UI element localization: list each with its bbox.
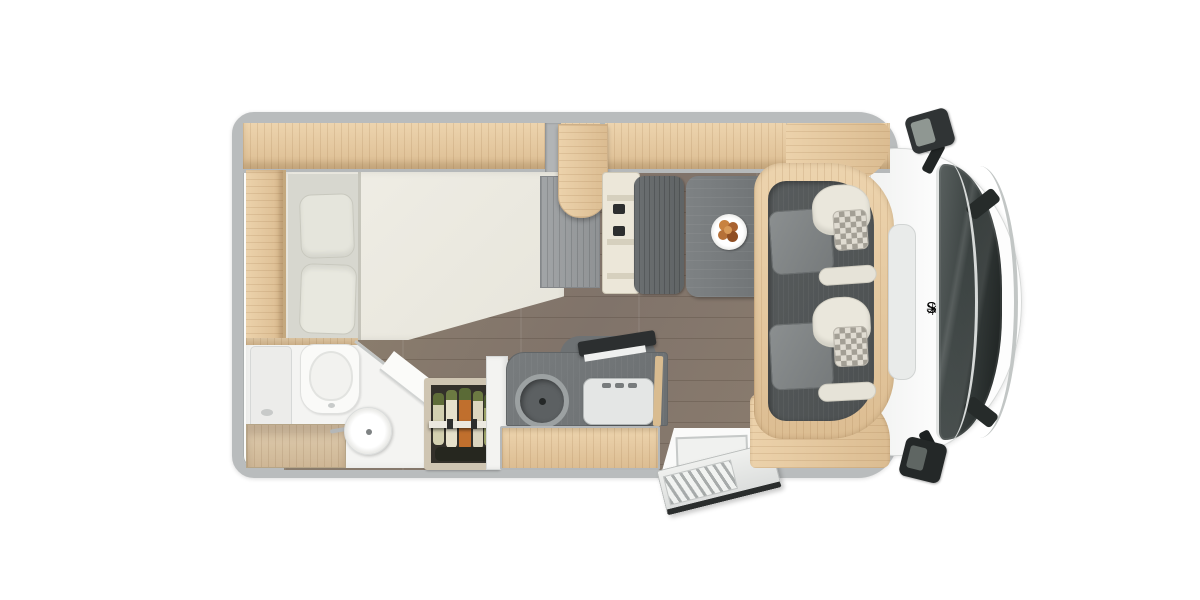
food-item	[724, 226, 732, 234]
wall-window	[316, 117, 446, 125]
produce-item-dark	[435, 447, 491, 461]
mirror-glass	[906, 445, 928, 471]
kitchen-sink	[515, 374, 569, 428]
toilet-flush-button	[328, 403, 335, 408]
hob-knob	[615, 383, 624, 388]
passenger-seat	[765, 295, 878, 407]
pillow	[299, 193, 355, 259]
burner	[628, 392, 648, 412]
seatbelt-buckle	[613, 226, 625, 236]
bench-rail	[607, 195, 637, 201]
produce-item	[433, 393, 444, 445]
shelf-clip	[471, 419, 477, 429]
seat-headrest-checker	[832, 209, 869, 251]
side-mirror-top	[906, 112, 966, 172]
burner	[609, 405, 631, 427]
floorplan-scene: Sunlight✳	[0, 0, 1200, 600]
seatbelt-buckle	[613, 204, 625, 214]
hob-knob	[602, 383, 611, 388]
bench-rail	[607, 273, 637, 279]
hob-knob	[628, 383, 637, 388]
shower-tray	[250, 346, 292, 432]
kitchen-cabinet-front	[500, 426, 660, 470]
pillow	[299, 263, 357, 335]
bench-rail	[607, 239, 637, 245]
dinette-bench-cushion	[634, 176, 684, 294]
gas-hob	[583, 378, 654, 425]
driver-seat	[765, 182, 880, 291]
produce-item	[459, 388, 471, 450]
side-mirror-bottom	[898, 426, 958, 486]
duvet-edge	[358, 172, 361, 340]
sink-drain	[539, 398, 546, 405]
mirror-glass	[910, 118, 936, 148]
mirror-head	[898, 436, 948, 485]
front-bumper-edge	[976, 166, 1018, 438]
toilet	[300, 344, 360, 414]
basin-drain	[366, 429, 372, 435]
seat-armrest	[818, 381, 877, 402]
shelf-clip	[447, 419, 453, 429]
seat-armrest	[818, 264, 877, 286]
mirror-head	[904, 107, 957, 156]
wall-window	[524, 469, 638, 477]
wall-window	[645, 117, 759, 125]
washbasin	[344, 407, 392, 455]
dashboard	[888, 224, 916, 380]
shower-drain	[261, 409, 273, 416]
plate	[711, 214, 747, 250]
seat-headrest-checker	[833, 326, 869, 368]
toilet-lid	[309, 351, 353, 401]
door-step-ribs	[663, 460, 738, 506]
partition-column	[558, 124, 608, 218]
